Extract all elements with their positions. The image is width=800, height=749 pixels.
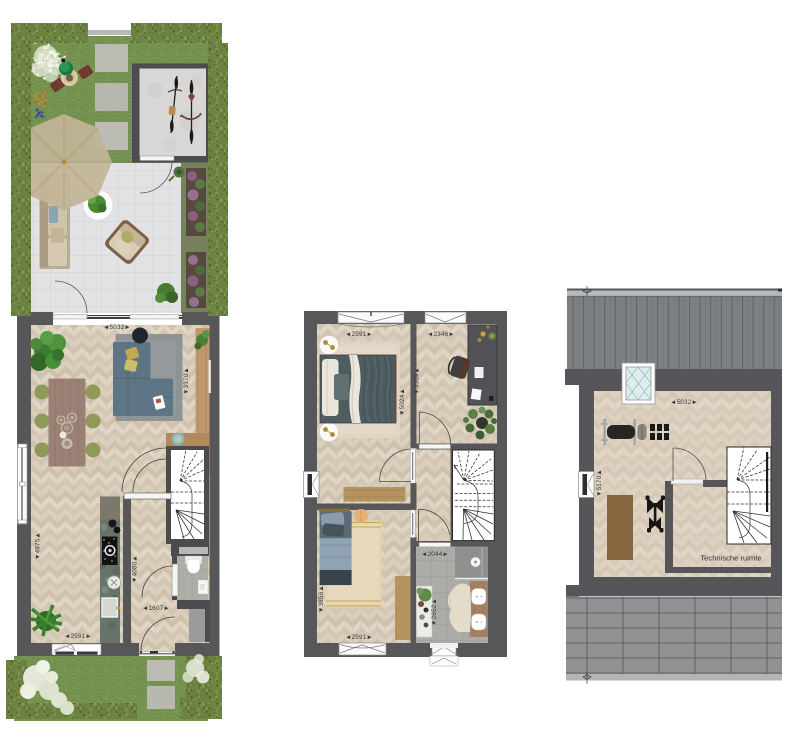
svg-text:▼3856▲: ▼3856▲ (318, 585, 325, 613)
svg-text:▼4975▲: ▼4975▲ (35, 532, 42, 560)
svg-text:◄5032►: ◄5032► (103, 324, 131, 331)
svg-text:◄5032►: ◄5032► (670, 399, 698, 406)
svg-text:◄2044►: ◄2044► (421, 551, 449, 558)
svg-text:▼3370▲: ▼3370▲ (183, 367, 190, 395)
svg-text:◄2591►: ◄2591► (345, 331, 373, 338)
svg-text:◄2591►: ◄2591► (345, 634, 373, 641)
svg-text:◄2591►: ◄2591► (64, 633, 92, 640)
svg-text:▼5170▲: ▼5170▲ (596, 469, 603, 497)
svg-text:▼3369▲: ▼3369▲ (414, 367, 421, 395)
svg-text:▼5024▲: ▼5024▲ (399, 388, 406, 416)
svg-text:◄1607►: ◄1607► (142, 605, 170, 612)
svg-text:Technische ruimte: Technische ruimte (700, 554, 761, 563)
svg-text:▼4080▲: ▼4080▲ (132, 555, 139, 583)
svg-text:▼2652▲: ▼2652▲ (431, 598, 438, 626)
svg-text:◄2346►: ◄2346► (427, 331, 455, 338)
